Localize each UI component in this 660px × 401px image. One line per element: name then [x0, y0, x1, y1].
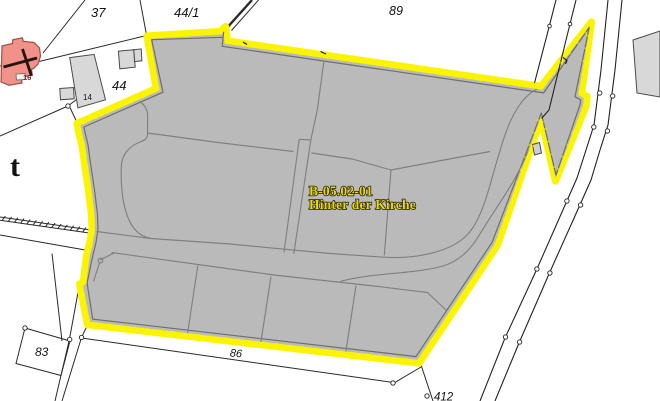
svg-text:Hinter der Kirche: Hinter der Kirche [309, 197, 416, 212]
svg-text:412: 412 [434, 392, 454, 401]
svg-text:t: t [10, 150, 20, 183]
svg-text:83: 83 [35, 345, 49, 359]
svg-text:89: 89 [389, 4, 403, 18]
svg-text:44: 44 [112, 78, 126, 93]
svg-text:14: 14 [83, 93, 92, 102]
svg-text:37: 37 [91, 5, 106, 20]
svg-text:44/1: 44/1 [174, 5, 199, 20]
svg-text:16: 16 [23, 73, 31, 82]
svg-text:86: 86 [229, 347, 243, 360]
